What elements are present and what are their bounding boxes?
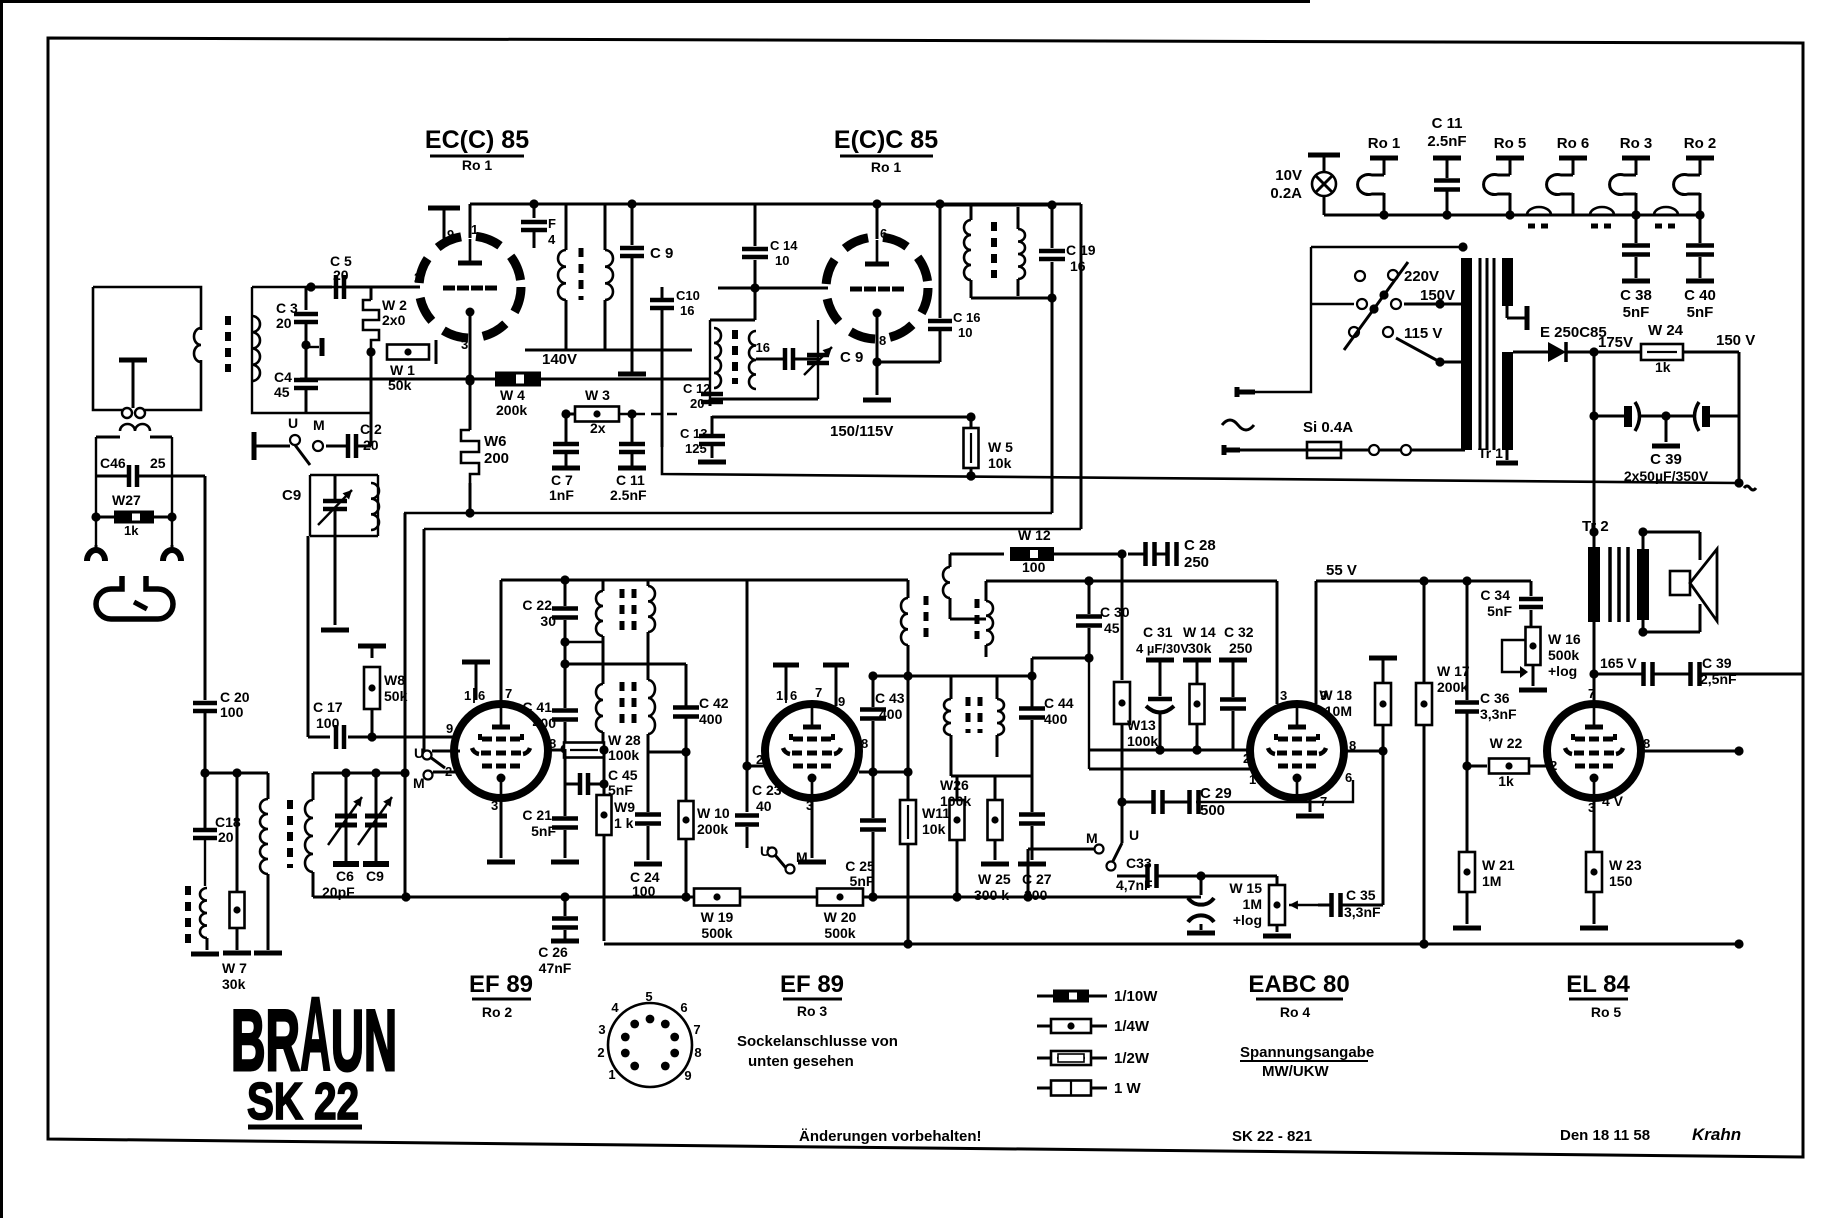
svg-text:30k: 30k — [222, 976, 246, 992]
svg-text:8: 8 — [861, 736, 868, 751]
svg-text:C 30: C 30 — [1100, 604, 1130, 620]
svg-text:200k: 200k — [1437, 679, 1468, 695]
svg-text:500k: 500k — [824, 925, 855, 941]
svg-text:150 V: 150 V — [1716, 332, 1755, 349]
svg-text:2: 2 — [414, 270, 421, 285]
svg-text:Ro 5: Ro 5 — [1591, 1004, 1622, 1020]
svg-text:100k: 100k — [940, 793, 971, 809]
svg-text:2,5nF: 2,5nF — [1700, 671, 1737, 687]
svg-text:W6: W6 — [484, 433, 507, 450]
svg-text:C 28: C 28 — [1184, 537, 1216, 554]
svg-text:20: 20 — [276, 315, 292, 331]
svg-text:EF 89: EF 89 — [780, 971, 844, 998]
svg-text:9: 9 — [838, 694, 845, 709]
svg-text:M: M — [1086, 830, 1098, 846]
svg-text:EC(C) 85: EC(C) 85 — [425, 126, 529, 154]
svg-text:2x0: 2x0 — [382, 312, 406, 328]
svg-text:W 24: W 24 — [1648, 322, 1684, 339]
svg-text:W8: W8 — [384, 672, 405, 688]
svg-text:6: 6 — [790, 688, 797, 703]
svg-text:EABC 80: EABC 80 — [1248, 971, 1349, 998]
svg-text:45: 45 — [1104, 620, 1120, 636]
svg-text:500: 500 — [1200, 802, 1225, 819]
svg-text:W26: W26 — [940, 777, 969, 793]
svg-text:EL 84: EL 84 — [1566, 971, 1630, 998]
svg-text:1M: 1M — [1243, 896, 1262, 912]
svg-text:W 7: W 7 — [222, 960, 247, 976]
svg-text:C 3: C 3 — [276, 300, 298, 316]
svg-text:EF 89: EF 89 — [469, 971, 533, 998]
svg-text:Tr 1: Tr 1 — [1478, 445, 1503, 461]
svg-text:1nF: 1nF — [549, 487, 574, 503]
svg-text:10: 10 — [958, 325, 972, 340]
svg-text:5nF: 5nF — [1487, 603, 1512, 619]
svg-text:140V: 140V — [542, 351, 577, 368]
svg-text:C 38: C 38 — [1620, 287, 1652, 304]
svg-text:C 12: C 12 — [683, 381, 710, 396]
svg-text:2.5nF: 2.5nF — [1427, 133, 1466, 150]
svg-text:7: 7 — [815, 685, 822, 700]
svg-text:C46: C46 — [100, 455, 126, 471]
svg-text:1k: 1k — [1498, 773, 1514, 789]
svg-text:W 15: W 15 — [1229, 880, 1262, 896]
svg-text:C 32: C 32 — [1224, 624, 1254, 640]
svg-text:Ro 3: Ro 3 — [797, 1003, 828, 1019]
svg-text:8: 8 — [694, 1045, 701, 1060]
svg-text:2: 2 — [597, 1045, 604, 1060]
svg-text:1/2W: 1/2W — [1114, 1050, 1150, 1067]
svg-text:W 22: W 22 — [1490, 735, 1523, 751]
svg-text:3: 3 — [1280, 688, 1287, 703]
svg-text:W13: W13 — [1127, 717, 1156, 733]
svg-text:20: 20 — [218, 829, 234, 845]
svg-text:1 k: 1 k — [614, 815, 634, 831]
svg-text:4: 4 — [548, 232, 556, 247]
svg-text:7: 7 — [824, 268, 831, 283]
svg-text:SK 22: SK 22 — [247, 1073, 359, 1131]
svg-text:W 28: W 28 — [608, 732, 641, 748]
svg-text:4: 4 — [611, 1000, 619, 1015]
svg-text:4 µF/30V: 4 µF/30V — [1136, 641, 1189, 656]
svg-text:1/10W: 1/10W — [1114, 988, 1158, 1005]
svg-text:W 21: W 21 — [1482, 857, 1515, 873]
svg-text:C 20: C 20 — [220, 689, 250, 705]
svg-text:Ro 1: Ro 1 — [1368, 135, 1401, 152]
svg-text:10M: 10M — [1325, 703, 1352, 719]
svg-text:55 V: 55 V — [1326, 562, 1357, 579]
svg-text:5nF: 5nF — [1623, 304, 1650, 321]
svg-text:115 V: 115 V — [1404, 325, 1442, 342]
svg-text:400: 400 — [1044, 711, 1068, 727]
svg-text:W 4: W 4 — [500, 387, 525, 403]
svg-text:300 k: 300 k — [974, 887, 1009, 903]
svg-text:16: 16 — [680, 303, 694, 318]
svg-text:5nF: 5nF — [1687, 304, 1714, 321]
svg-text:C 9: C 9 — [650, 245, 673, 262]
svg-text:C9: C9 — [282, 487, 301, 504]
svg-text:Ro 4: Ro 4 — [1280, 1004, 1311, 1020]
svg-text:45: 45 — [274, 384, 290, 400]
svg-text:C 11: C 11 — [616, 472, 645, 488]
svg-text:150/115V: 150/115V — [830, 423, 893, 440]
svg-text:50k: 50k — [384, 688, 408, 704]
svg-text:W 18: W 18 — [1319, 687, 1352, 703]
svg-text:500k: 500k — [701, 925, 732, 941]
svg-text:5nF: 5nF — [850, 873, 875, 889]
svg-text:1: 1 — [471, 222, 478, 237]
svg-text:1/4W: 1/4W — [1114, 1018, 1150, 1035]
svg-text:W 2: W 2 — [382, 297, 407, 313]
svg-text:1: 1 — [464, 688, 471, 703]
svg-text:1: 1 — [1249, 772, 1256, 787]
svg-text:C 34: C 34 — [1480, 587, 1510, 603]
svg-text:C 25: C 25 — [845, 858, 875, 874]
svg-text:C 44: C 44 — [1044, 695, 1074, 711]
svg-text:E(C)C 85: E(C)C 85 — [834, 126, 938, 154]
svg-text:W9: W9 — [614, 799, 635, 815]
svg-text:2: 2 — [1243, 751, 1250, 766]
svg-text:9: 9 — [684, 1068, 691, 1083]
svg-text:C 35: C 35 — [1346, 887, 1376, 903]
svg-text:10V: 10V — [1275, 167, 1302, 184]
svg-text:30: 30 — [540, 613, 556, 629]
svg-text:100: 100 — [220, 704, 244, 720]
svg-text:C 36: C 36 — [1480, 690, 1510, 706]
svg-text:400: 400 — [533, 715, 557, 731]
svg-text:1: 1 — [608, 1067, 615, 1082]
svg-text:10k: 10k — [988, 455, 1012, 471]
svg-text:C6: C6 — [336, 868, 354, 884]
svg-text:C 9: C 9 — [840, 349, 863, 366]
svg-text:C 11: C 11 — [1432, 115, 1463, 132]
svg-text:C 17: C 17 — [313, 699, 343, 715]
svg-text:2.5nF: 2.5nF — [610, 487, 647, 503]
svg-text:250: 250 — [1184, 554, 1209, 571]
svg-text:W 20: W 20 — [824, 909, 857, 925]
svg-text:1 W: 1 W — [1114, 1080, 1142, 1097]
svg-text:C 45: C 45 — [608, 767, 638, 783]
svg-text:+log: +log — [1233, 912, 1262, 928]
svg-text:200: 200 — [484, 450, 509, 467]
svg-text:C 21: C 21 — [522, 807, 552, 823]
svg-text:MW/UKW: MW/UKW — [1262, 1063, 1329, 1080]
svg-text:3: 3 — [461, 337, 468, 352]
svg-text:W 17: W 17 — [1437, 663, 1470, 679]
svg-text:500k: 500k — [1548, 647, 1579, 663]
svg-text:C 31: C 31 — [1143, 624, 1173, 640]
svg-text:U: U — [1129, 827, 1139, 843]
svg-text:25: 25 — [150, 455, 166, 471]
svg-text:1M: 1M — [1482, 873, 1501, 889]
svg-text:Ro 1: Ro 1 — [871, 159, 902, 175]
svg-text:30k: 30k — [1188, 640, 1212, 656]
svg-text:8: 8 — [879, 333, 886, 348]
svg-text:150: 150 — [1609, 873, 1633, 889]
svg-text:C 41: C 41 — [522, 699, 552, 715]
svg-text:Ro 2: Ro 2 — [482, 1004, 513, 1020]
svg-text:3,3nF: 3,3nF — [1480, 706, 1517, 722]
svg-text:4,7nF: 4,7nF — [1116, 877, 1153, 893]
svg-text:M: M — [313, 417, 325, 433]
svg-text:1k: 1k — [124, 523, 139, 538]
svg-text:W 5: W 5 — [988, 439, 1013, 455]
svg-text:6: 6 — [680, 1000, 687, 1015]
svg-text:10k: 10k — [922, 821, 946, 837]
svg-text:16: 16 — [1070, 258, 1086, 274]
svg-text:2x: 2x — [590, 420, 606, 436]
svg-text:47nF: 47nF — [539, 960, 572, 976]
svg-text:W 16: W 16 — [1548, 631, 1581, 647]
svg-text:100k: 100k — [1127, 733, 1158, 749]
svg-text:4 V: 4 V — [1602, 793, 1624, 809]
svg-text:F: F — [548, 216, 556, 231]
svg-text:100k: 100k — [608, 747, 639, 763]
svg-text:Änderungen vorbehalten!: Änderungen vorbehalten! — [799, 1128, 982, 1145]
svg-text:8: 8 — [1643, 736, 1650, 751]
svg-text:6: 6 — [1345, 770, 1352, 785]
svg-text:9: 9 — [446, 721, 453, 736]
svg-text:220V: 220V — [1404, 268, 1439, 285]
svg-text:125: 125 — [685, 441, 707, 456]
svg-text:2: 2 — [1550, 758, 1557, 773]
svg-text:16: 16 — [756, 340, 770, 355]
svg-text:1k: 1k — [1655, 359, 1671, 375]
svg-text:W27: W27 — [112, 492, 141, 508]
svg-text:Den 18 11 58: Den 18 11 58 — [1560, 1127, 1650, 1144]
svg-text:200k: 200k — [697, 821, 728, 837]
svg-text:10: 10 — [775, 253, 789, 268]
svg-text:5nF: 5nF — [531, 823, 556, 839]
svg-text:C 26: C 26 — [538, 944, 568, 960]
svg-text:C 39: C 39 — [1650, 451, 1682, 468]
svg-text:20: 20 — [690, 396, 704, 411]
svg-text:C33: C33 — [1126, 855, 1152, 871]
svg-text:C 40: C 40 — [1684, 287, 1716, 304]
svg-text:175V: 175V — [1598, 334, 1633, 351]
svg-text:C 42: C 42 — [699, 695, 729, 711]
svg-text:W 19: W 19 — [701, 909, 734, 925]
svg-text:Krahn: Krahn — [1692, 1125, 1741, 1144]
svg-text:C 43: C 43 — [875, 690, 905, 706]
svg-text:W 1: W 1 — [390, 362, 415, 378]
svg-text:0.2A: 0.2A — [1270, 185, 1302, 202]
svg-text:40: 40 — [756, 798, 772, 814]
svg-text:400: 400 — [699, 711, 723, 727]
svg-text:C 22: C 22 — [522, 597, 552, 613]
svg-text:3: 3 — [598, 1022, 605, 1037]
svg-text:unten gesehen: unten gesehen — [748, 1053, 854, 1070]
svg-text:C 27: C 27 — [1022, 871, 1052, 887]
svg-text:C 7: C 7 — [551, 472, 573, 488]
svg-text:400: 400 — [879, 706, 903, 722]
svg-text:W 12: W 12 — [1018, 527, 1051, 543]
svg-text:W 25: W 25 — [978, 871, 1011, 887]
svg-text:C4: C4 — [274, 369, 292, 385]
svg-text:6: 6 — [880, 226, 887, 241]
svg-text:+log: +log — [1548, 663, 1577, 679]
svg-text:3: 3 — [491, 798, 498, 813]
svg-text:2x50µF/350V: 2x50µF/350V — [1624, 468, 1709, 484]
svg-text:6: 6 — [478, 688, 485, 703]
svg-text:20: 20 — [333, 267, 349, 283]
svg-text:C9: C9 — [366, 868, 384, 884]
svg-text:Sockelanschlusse von: Sockelanschlusse von — [737, 1033, 898, 1050]
svg-text:W 10: W 10 — [697, 805, 730, 821]
svg-text:W 14: W 14 — [1183, 624, 1216, 640]
svg-text:200k: 200k — [496, 402, 527, 418]
svg-text:7: 7 — [693, 1022, 700, 1037]
svg-text:100: 100 — [1022, 559, 1046, 575]
svg-text:Si 0.4A: Si 0.4A — [1303, 419, 1353, 436]
svg-text:Ro 6: Ro 6 — [1557, 135, 1590, 152]
svg-text:M: M — [413, 775, 425, 791]
svg-text:SK 22 - 821: SK 22 - 821 — [1232, 1128, 1312, 1145]
svg-text:100: 100 — [316, 715, 340, 731]
svg-text:1: 1 — [776, 688, 783, 703]
svg-text:C 13: C 13 — [680, 426, 707, 441]
svg-text:U: U — [288, 415, 298, 431]
svg-text:Spannungsangabe: Spannungsangabe — [1240, 1044, 1374, 1061]
svg-text:C10: C10 — [676, 288, 700, 303]
svg-text:W 3: W 3 — [585, 387, 610, 403]
svg-text:9: 9 — [447, 227, 454, 242]
svg-text:C 23: C 23 — [752, 782, 782, 798]
svg-text:3,3nF: 3,3nF — [1344, 904, 1381, 920]
svg-text:Ro 3: Ro 3 — [1620, 135, 1653, 152]
svg-text:7: 7 — [505, 686, 512, 701]
svg-text:C 14: C 14 — [770, 238, 798, 253]
svg-text:5: 5 — [645, 989, 652, 1004]
svg-text:Ro 5: Ro 5 — [1494, 135, 1527, 152]
svg-text:C 16: C 16 — [953, 310, 980, 325]
svg-text:C 39: C 39 — [1702, 655, 1732, 671]
svg-text:W 23: W 23 — [1609, 857, 1642, 873]
svg-text:Ro 1: Ro 1 — [462, 157, 493, 173]
svg-text:Ro 2: Ro 2 — [1684, 135, 1717, 152]
svg-text:E 250C85: E 250C85 — [1540, 324, 1607, 341]
svg-text:165 V: 165 V — [1600, 655, 1637, 671]
svg-text:250: 250 — [1229, 640, 1253, 656]
svg-text:C 29: C 29 — [1200, 785, 1232, 802]
